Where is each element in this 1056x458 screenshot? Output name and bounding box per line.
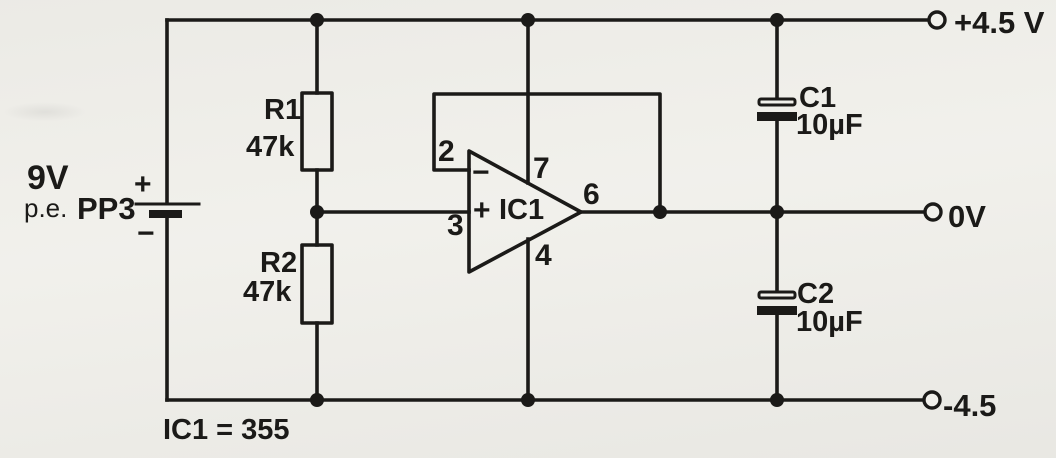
c2-positive-plate (759, 292, 795, 298)
r1-ref-label: R1 (264, 94, 301, 126)
junction-dot (653, 205, 667, 219)
battery-example-label: p.e. (24, 193, 67, 223)
r2-ref-label: R2 (260, 247, 297, 279)
pin6-label: 6 (583, 178, 600, 211)
terminal-positive-circle (929, 12, 945, 28)
c1-value-label: 10µF (796, 109, 863, 141)
c1-negative-plate (757, 112, 797, 121)
terminal-positive-label: +4.5 V (954, 5, 1045, 40)
battery-type-label: PP3 (77, 191, 136, 226)
terminal-negative-circle (924, 392, 940, 408)
resistor-r2-body (302, 245, 332, 323)
circuit-diagram: 9V p.e. PP3 + − R1 47k R2 47k 2 3 7 6 4 … (0, 0, 1056, 458)
junction-dot (770, 13, 784, 27)
terminal-zero-circle (925, 204, 941, 220)
c1-positive-plate (759, 99, 795, 105)
terminal-zero-label: 0V (948, 199, 986, 234)
junction-dot (521, 393, 535, 407)
r1-value-label: 47k (246, 131, 295, 163)
battery-plus-sign: + (134, 168, 152, 201)
opamp-plus-sign: + (473, 194, 491, 227)
resistor-r1-body (302, 93, 332, 170)
pin7-label: 7 (533, 152, 550, 185)
battery-voltage-label: 9V (27, 159, 69, 197)
c2-value-label: 10µF (796, 306, 863, 338)
pin2-label: 2 (438, 135, 455, 168)
ic-note-label: IC1 = 355 (163, 414, 290, 446)
r2-value-label: 47k (243, 276, 292, 308)
opamp-ref-label: IC1 (499, 194, 544, 226)
pin4-label: 4 (535, 239, 552, 272)
junction-dot (310, 393, 324, 407)
junction-dot (310, 13, 324, 27)
junction-dot (770, 393, 784, 407)
opamp-minus-sign: − (472, 156, 490, 189)
schematic-scan: 9V p.e. PP3 + − R1 47k R2 47k 2 3 7 6 4 … (0, 0, 1056, 458)
battery-minus-sign: − (137, 217, 155, 250)
junction-dot (521, 13, 535, 27)
pin3-label: 3 (447, 209, 464, 242)
junction-dot (770, 205, 784, 219)
junction-dot (310, 205, 324, 219)
c2-negative-plate (757, 306, 797, 315)
terminal-negative-label: -4.5 (943, 388, 996, 423)
